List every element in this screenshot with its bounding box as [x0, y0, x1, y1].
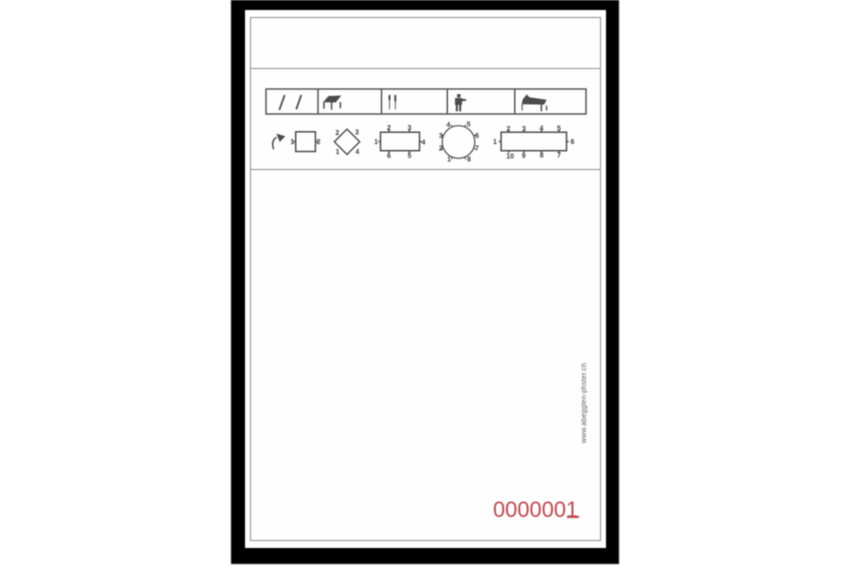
- svg-text:4: 4: [446, 122, 450, 129]
- svg-text:3: 3: [407, 125, 411, 132]
- svg-text:3: 3: [355, 130, 359, 137]
- svg-text:8: 8: [540, 153, 544, 160]
- svg-text:6: 6: [387, 153, 391, 160]
- svg-text:3: 3: [439, 133, 443, 140]
- svg-text:6: 6: [475, 133, 479, 140]
- svg-text:4: 4: [539, 126, 543, 133]
- svg-text:2: 2: [387, 125, 391, 132]
- svg-text:6: 6: [571, 139, 575, 146]
- svg-text:3: 3: [522, 126, 526, 133]
- svg-text:1: 1: [290, 139, 294, 146]
- svg-text:2: 2: [317, 139, 321, 146]
- svg-text:10: 10: [506, 154, 514, 161]
- svg-text:2: 2: [507, 126, 511, 133]
- svg-text:1: 1: [336, 149, 340, 156]
- svg-text:1: 1: [493, 139, 497, 146]
- svg-text:5: 5: [557, 125, 561, 132]
- svg-text:4: 4: [355, 149, 359, 156]
- svg-text:1: 1: [447, 157, 451, 164]
- svg-text:9: 9: [522, 153, 526, 160]
- svg-text:4: 4: [421, 139, 425, 146]
- svg-text:5: 5: [467, 122, 471, 129]
- svg-text:5: 5: [407, 153, 411, 160]
- svg-text:8: 8: [467, 156, 471, 163]
- svg-text:7: 7: [475, 145, 479, 152]
- svg-text:2: 2: [335, 130, 339, 137]
- svg-text:2: 2: [439, 146, 443, 153]
- svg-text:1: 1: [374, 139, 378, 146]
- svg-text:7: 7: [557, 153, 561, 160]
